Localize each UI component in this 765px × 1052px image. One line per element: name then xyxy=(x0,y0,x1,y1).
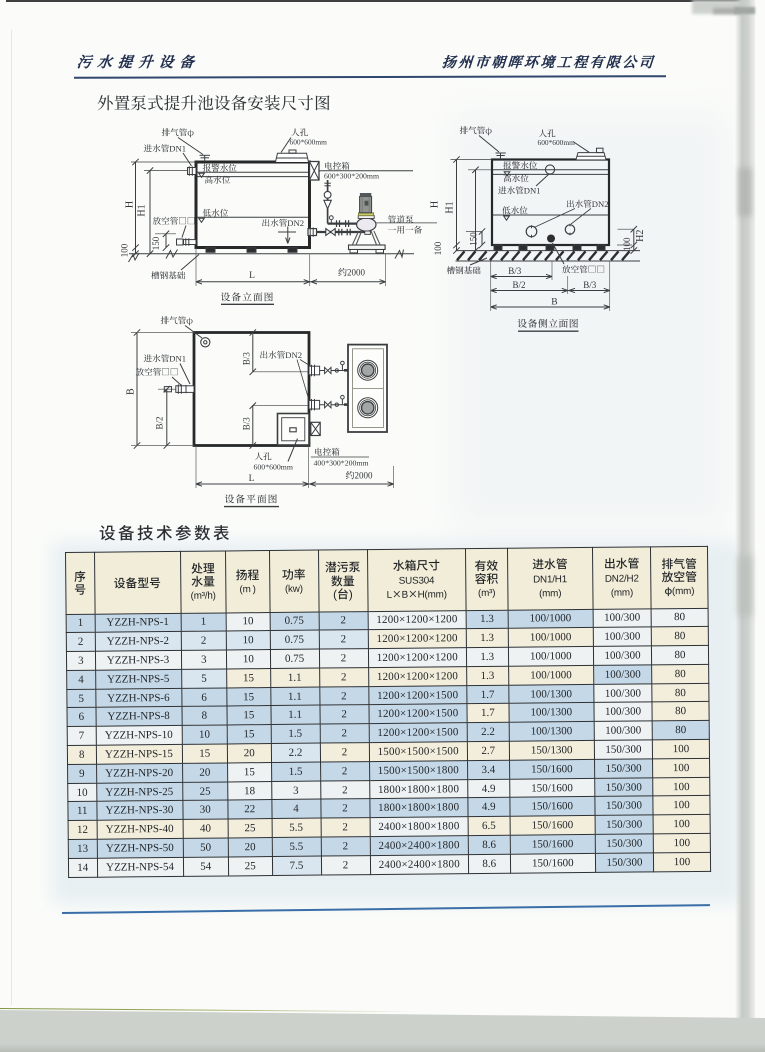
svg-text:排气管φ: 排气管φ xyxy=(161,314,194,326)
svg-text:600*300*200mm: 600*300*200mm xyxy=(324,170,379,181)
svg-text:电控箱: 电控箱 xyxy=(314,446,340,458)
svg-text:高水位: 高水位 xyxy=(503,172,529,184)
svg-text:B/3: B/3 xyxy=(508,264,522,277)
svg-text:L: L xyxy=(249,267,255,281)
svg-text:排气管φ: 排气管φ xyxy=(162,126,195,138)
svg-text:出水管DN2: 出水管DN2 xyxy=(262,217,305,229)
svg-text:报警水位: 报警水位 xyxy=(203,162,238,174)
svg-text:100: 100 xyxy=(431,241,444,255)
svg-text:B/3: B/3 xyxy=(240,352,253,366)
svg-text:放空管□□: 放空管□□ xyxy=(153,215,196,227)
svg-text:600*600mm: 600*600mm xyxy=(254,461,293,472)
svg-text:H1: H1 xyxy=(441,201,456,213)
svg-text:报警水位: 报警水位 xyxy=(503,159,538,171)
svg-text:B/2: B/2 xyxy=(152,416,165,429)
svg-text:H: H xyxy=(426,201,441,208)
svg-text:约2000: 约2000 xyxy=(338,265,366,278)
svg-text:槽钢基础: 槽钢基础 xyxy=(447,264,482,276)
svg-text:设备侧立面图: 设备侧立面图 xyxy=(517,316,579,330)
svg-text:进水管DN1: 进水管DN1 xyxy=(498,184,541,196)
svg-text:400*300*200mm: 400*300*200mm xyxy=(314,458,369,469)
svg-text:设备立面图: 设备立面图 xyxy=(221,290,275,304)
svg-text:槽钢基础: 槽钢基础 xyxy=(151,270,186,282)
svg-text:B/3: B/3 xyxy=(240,417,253,431)
svg-text:放空管□□: 放空管□□ xyxy=(136,366,179,378)
svg-text:设备平面图: 设备平面图 xyxy=(225,491,279,505)
svg-text:排气管φ: 排气管φ xyxy=(460,125,493,137)
svg-text:低水位: 低水位 xyxy=(502,204,528,216)
svg-text:100: 100 xyxy=(620,237,633,251)
svg-text:B/2: B/2 xyxy=(512,278,525,291)
svg-text:100: 100 xyxy=(118,243,131,257)
svg-text:放空管□□: 放空管□□ xyxy=(562,263,605,275)
svg-text:600*600mm: 600*600mm xyxy=(538,137,576,148)
svg-text:H2: H2 xyxy=(631,230,646,242)
svg-text:B: B xyxy=(122,388,137,395)
svg-text:低水位: 低水位 xyxy=(203,207,229,219)
svg-text:进水管DN1: 进水管DN1 xyxy=(144,143,187,155)
svg-text:B/3: B/3 xyxy=(583,278,597,291)
svg-text:出水管DN2: 出水管DN2 xyxy=(260,349,303,361)
svg-text:600*600mm: 600*600mm xyxy=(290,136,328,147)
svg-text:H1: H1 xyxy=(133,204,148,216)
svg-text:一用一备: 一用一备 xyxy=(388,224,423,236)
svg-text:出水管DN2: 出水管DN2 xyxy=(566,198,609,210)
svg-text:B: B xyxy=(551,294,557,308)
svg-text:约2000: 约2000 xyxy=(346,469,374,482)
svg-text:进水管DN1: 进水管DN1 xyxy=(144,353,187,365)
svg-text:150: 150 xyxy=(149,236,162,250)
svg-text:150: 150 xyxy=(467,232,480,246)
svg-text:L: L xyxy=(249,470,255,484)
svg-text:高水位: 高水位 xyxy=(205,174,231,186)
